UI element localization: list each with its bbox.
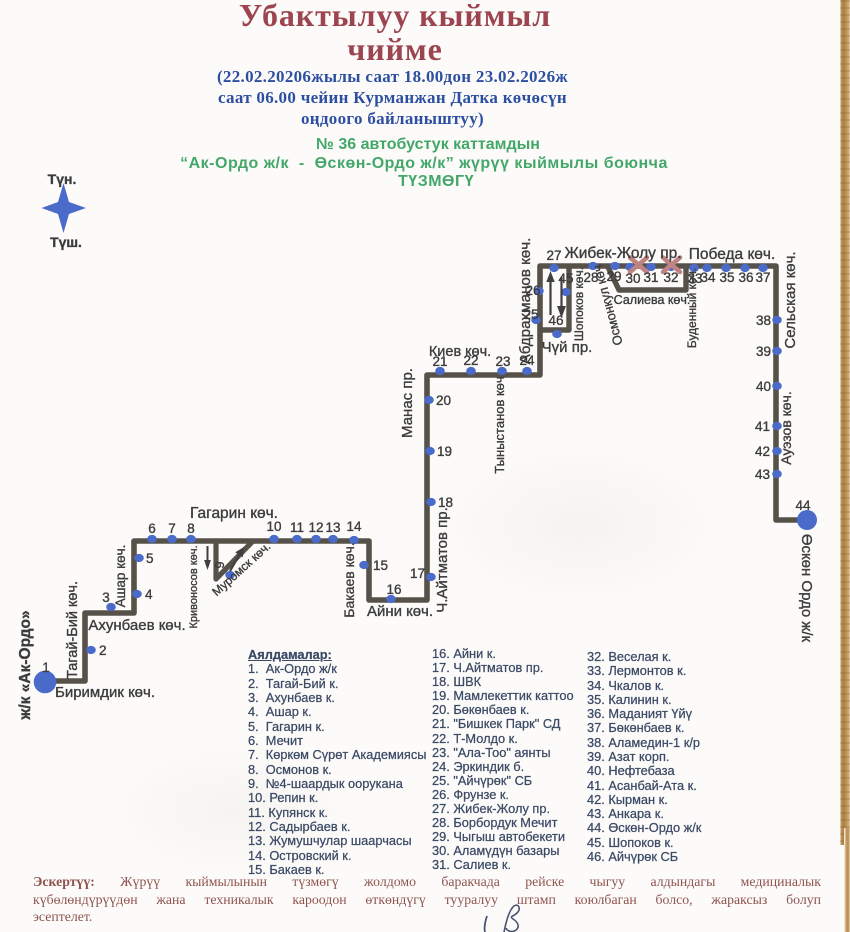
svg-text:Гагарин көч.: Гагарин көч. [190,505,278,522]
svg-text:8: 8 [187,521,195,536]
svg-text:Победа көч.: Победа көч. [689,246,776,263]
svg-text:27: 27 [546,248,561,263]
svg-text:Абдрахманов көч.: Абдрахманов көч. [517,238,534,365]
svg-text:36: 36 [738,270,753,285]
svg-text:Тыныстанов көч: Тыныстанов көч [492,376,507,473]
svg-text:Салиева көч.: Салиева көч. [614,293,691,307]
svg-text:Ахунбаев көч.: Ахунбаев көч. [88,617,185,634]
svg-text:Манас пр.: Манас пр. [399,368,416,438]
svg-text:Түш.: Түш. [50,234,82,250]
svg-text:15: 15 [373,558,388,573]
svg-text:2: 2 [99,643,107,658]
svg-text:Айни көч.: Айни көч. [367,603,433,620]
svg-text:Шопоков көч.: Шопоков көч. [572,267,586,341]
svg-text:4: 4 [145,587,153,602]
svg-text:14: 14 [346,519,362,534]
svg-text:13: 13 [325,520,340,535]
svg-text:1: 1 [42,660,50,675]
svg-text:39: 39 [756,344,771,359]
svg-text:23: 23 [495,354,510,369]
svg-text:37: 37 [755,270,770,285]
svg-text:40: 40 [756,379,771,394]
svg-text:35: 35 [719,270,734,285]
svg-text:38: 38 [756,313,771,328]
svg-text:Киев көч.: Киев көч. [429,344,491,360]
svg-text:9: 9 [212,561,227,568]
svg-text:Ауэзов көч.: Ауэзов көч. [778,391,794,464]
svg-text:Тагай-Бий көч.: Тагай-Бий көч. [65,581,81,679]
svg-text:6: 6 [148,521,156,536]
svg-text:Кривоносов көч.: Кривоносов көч. [188,545,200,628]
svg-text:ж/к «Ак-Ордо»: ж/к «Ак-Ордо» [17,610,34,720]
svg-text:Жибек-Жолу пр.: Жибек-Жолу пр. [564,245,681,262]
svg-text:44: 44 [795,498,811,513]
svg-text:17: 17 [410,566,425,581]
svg-text:31: 31 [643,270,658,285]
svg-text:42: 42 [755,444,770,459]
svg-text:11: 11 [290,520,304,535]
svg-text:Буденный көч.: Буденный көч. [685,268,699,348]
svg-text:Биримдик көч.: Биримдик көч. [55,684,155,701]
svg-text:Сельская көч.: Сельская көч. [782,251,799,348]
svg-text:7: 7 [168,521,176,536]
svg-text:34: 34 [700,270,716,285]
svg-text:Ашар көч.: Ашар көч. [113,545,128,608]
svg-text:41: 41 [755,419,770,434]
svg-text:20: 20 [436,393,451,408]
svg-text:Ч.Айтматов пр.: Ч.Айтматов пр. [434,507,451,613]
svg-text:32: 32 [663,270,678,285]
svg-text:5: 5 [146,551,154,566]
svg-text:46: 46 [548,313,563,328]
svg-text:43: 43 [755,467,770,482]
svg-text:12: 12 [308,520,323,535]
svg-text:19: 19 [437,444,452,459]
svg-text:3: 3 [102,590,110,605]
svg-text:30: 30 [625,271,640,286]
svg-text:Өскөн Ордо ж/к: Өскөн Ордо ж/к [798,534,815,643]
svg-text:Түн.: Түн. [48,171,77,187]
svg-text:Бакаев көч.: Бакаев көч. [341,542,357,617]
svg-text:16: 16 [386,582,401,597]
